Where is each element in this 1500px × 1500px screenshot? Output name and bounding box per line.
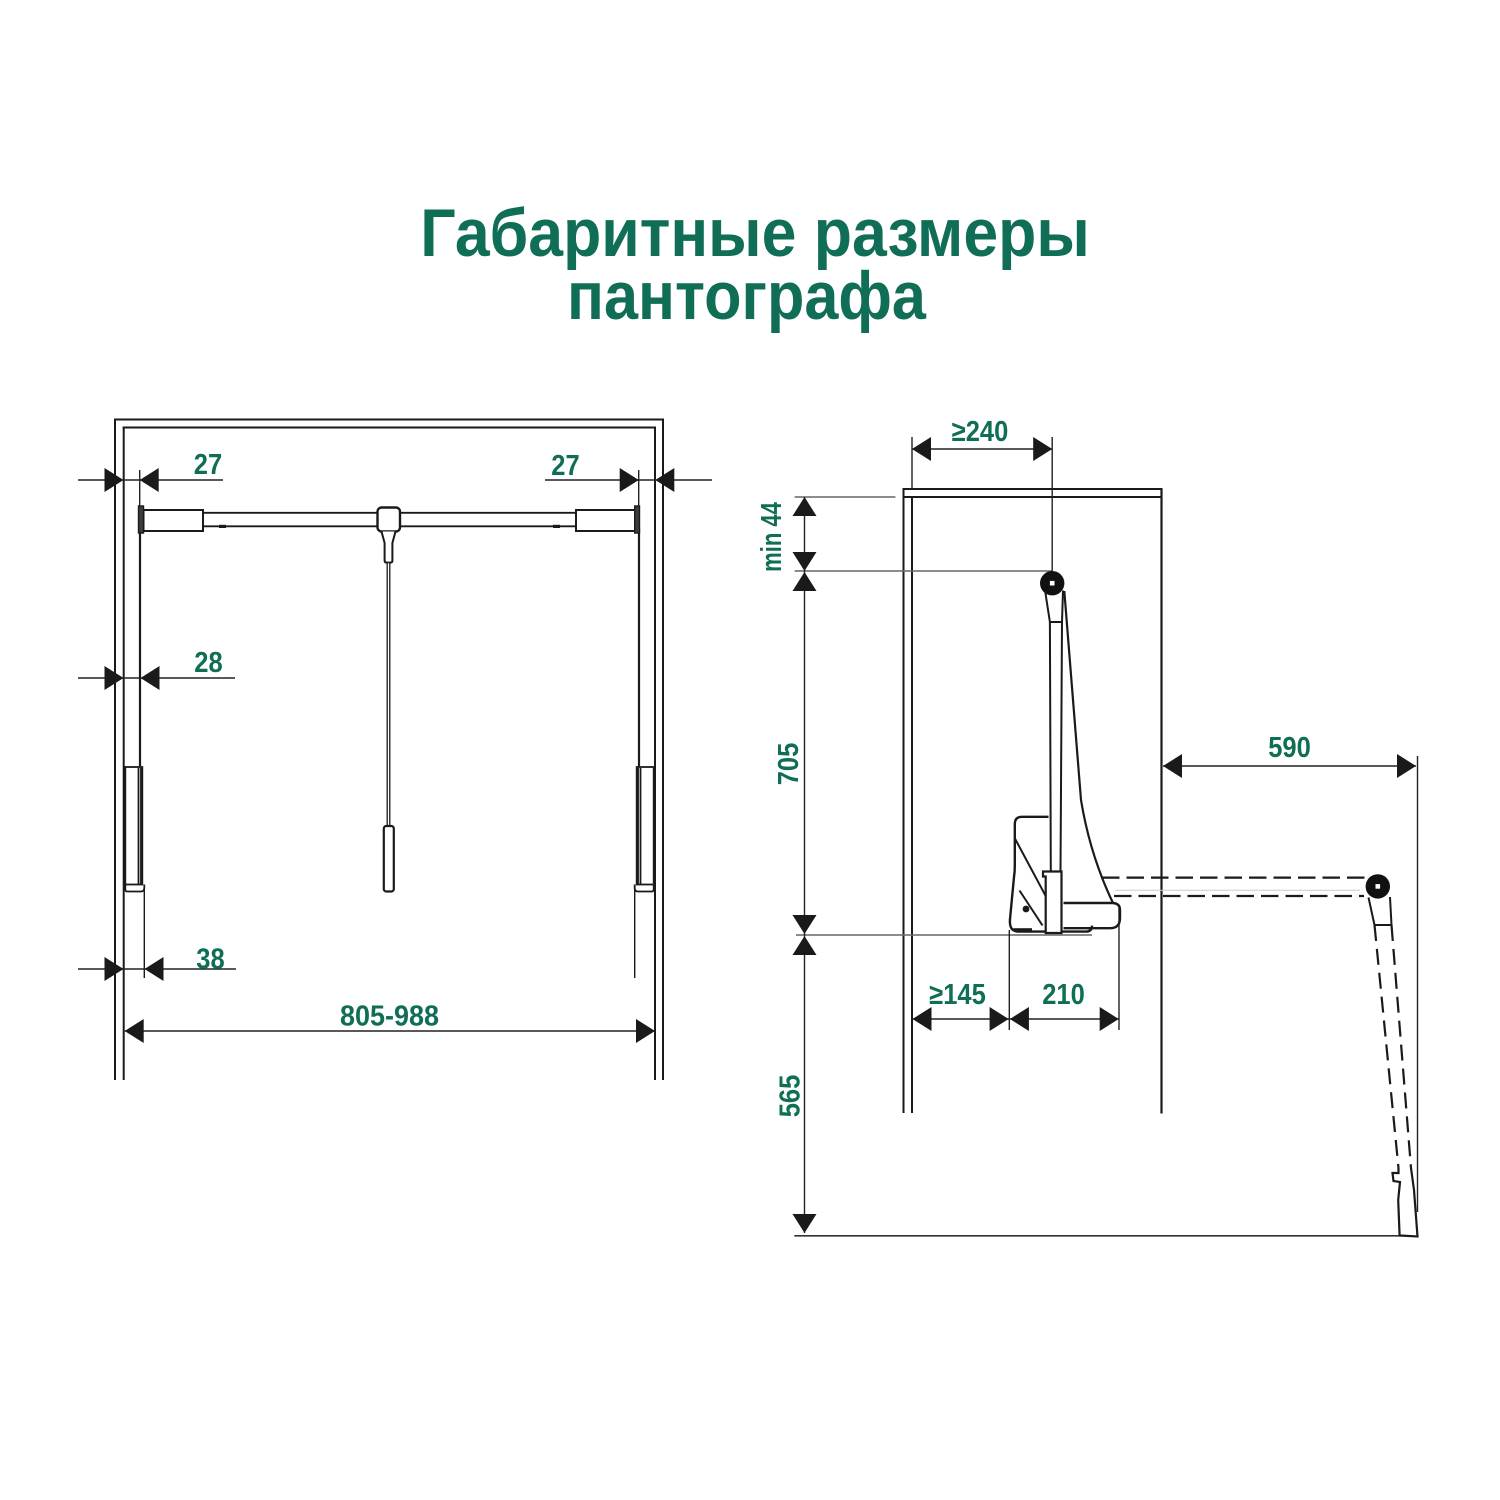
svg-text:805-988: 805-988 — [340, 1000, 439, 1032]
svg-text:27: 27 — [551, 448, 579, 481]
svg-text:565: 565 — [773, 1075, 806, 1118]
svg-text:пантографа: пантографа — [567, 257, 927, 334]
svg-text:27: 27 — [194, 447, 222, 480]
svg-text:705: 705 — [771, 743, 804, 786]
svg-text:210: 210 — [1042, 977, 1085, 1010]
svg-text:min 44: min 44 — [756, 502, 788, 572]
svg-text:590: 590 — [1268, 730, 1311, 763]
svg-text:28: 28 — [194, 645, 222, 678]
svg-text:38: 38 — [196, 942, 224, 975]
svg-text:≥240: ≥240 — [952, 414, 1009, 447]
svg-text:≥145: ≥145 — [929, 977, 986, 1010]
